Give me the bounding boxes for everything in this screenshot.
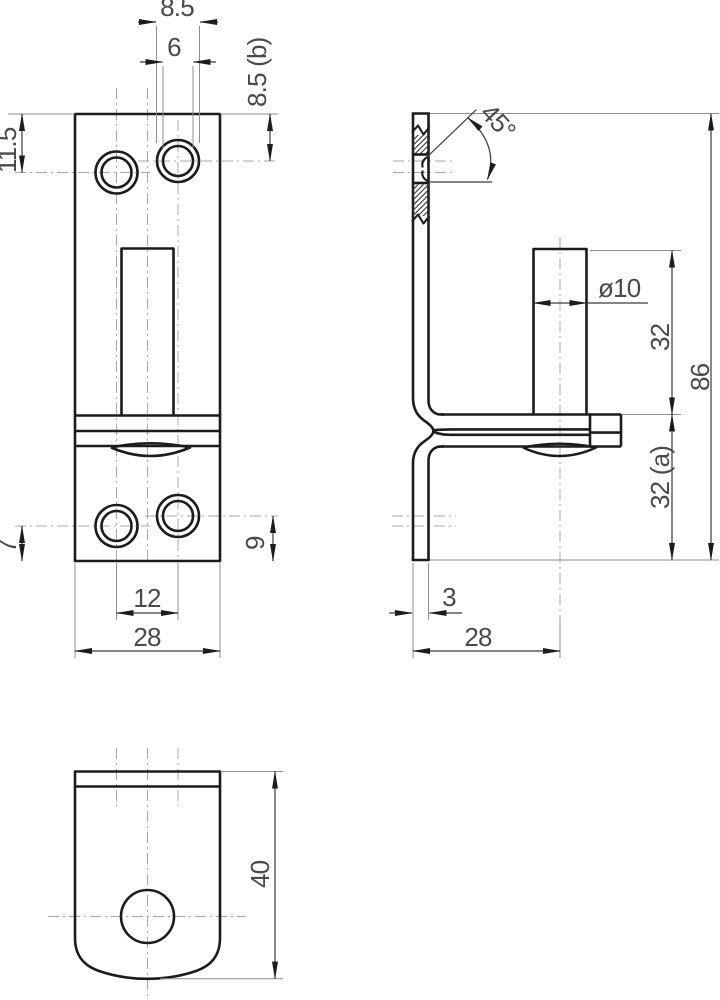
plate-back-edge bbox=[413, 114, 433, 561]
dim-pin-diameter: ø10 bbox=[598, 273, 641, 303]
leg-mid-line-1 bbox=[434, 429, 590, 430]
dim-bevel-angle: 45° bbox=[475, 98, 522, 145]
dim-bottom-to-right-hole: 9 bbox=[240, 536, 270, 550]
dim-plate-width: 28 bbox=[133, 622, 161, 652]
plate-front-edge-lower bbox=[429, 446, 445, 560]
dim-eyelet-outer: 8.5 bbox=[160, 0, 194, 22]
dim-material-thickness: 3 bbox=[442, 582, 456, 612]
dim-lower-section: 32 (a) bbox=[645, 446, 675, 509]
technical-drawing-sheet: 8.5 6 8.5 (b) 11.5 7 9 12 28 bbox=[0, 0, 720, 1000]
break-line-upper bbox=[412, 126, 430, 135]
dim-eyelet-inner: 6 bbox=[167, 32, 181, 62]
dim-hole-spacing: 12 bbox=[133, 583, 161, 613]
leg-mid-line-2 bbox=[434, 432, 590, 435]
side-view: 45° ø10 32 86 32 (a) 3 28 bbox=[389, 98, 719, 658]
drawing-canvas: 8.5 6 8.5 (b) 11.5 7 9 12 28 bbox=[0, 0, 720, 1000]
dim-top-to-left-hole: 11.5 bbox=[0, 127, 22, 173]
bottom-view: 40 bbox=[48, 748, 283, 999]
dim-leg-length: 40 bbox=[245, 860, 275, 888]
dim-top-to-right-hole: 8.5 (b) bbox=[242, 37, 272, 107]
dim-overall-height: 86 bbox=[685, 363, 715, 391]
dim-pin-length: 32 bbox=[645, 323, 675, 351]
plate-front-edge-upper bbox=[429, 114, 445, 415]
dim-bottom-to-left-hole: 7 bbox=[0, 539, 22, 553]
front-view: 8.5 6 8.5 (b) 11.5 7 9 12 28 bbox=[0, 0, 278, 658]
angle-45-line bbox=[426, 110, 477, 159]
dim-leg-depth: 28 bbox=[464, 622, 492, 652]
break-line-lower bbox=[412, 215, 430, 224]
